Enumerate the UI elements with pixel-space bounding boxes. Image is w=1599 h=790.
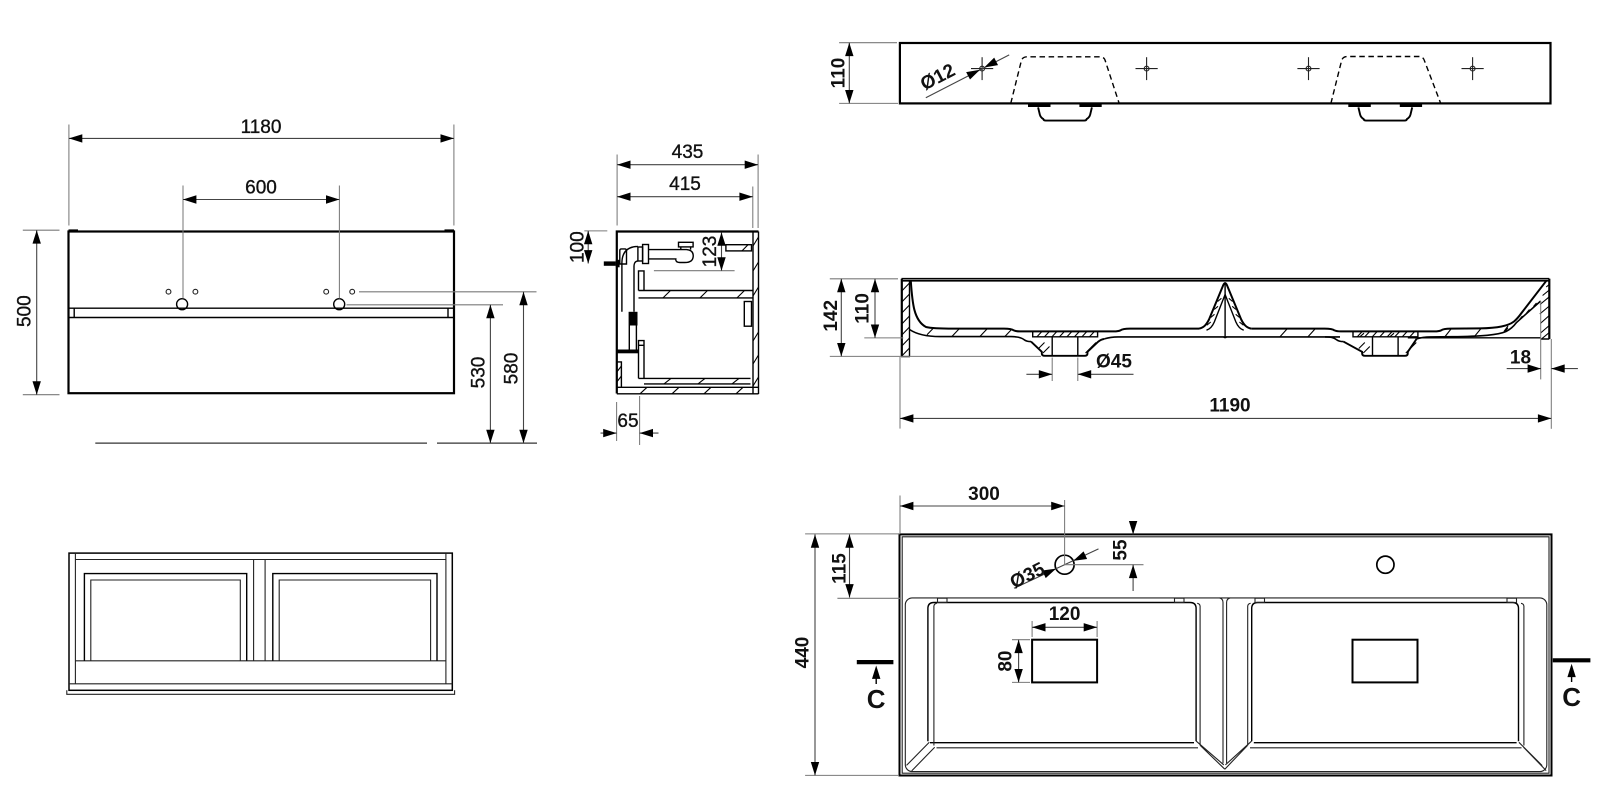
svg-text:110: 110 (829, 58, 850, 89)
svg-text:600: 600 (245, 178, 277, 199)
svg-text:440: 440 (793, 637, 814, 669)
svg-text:142: 142 (821, 300, 842, 332)
svg-text:C: C (1562, 682, 1581, 712)
svg-text:435: 435 (672, 142, 704, 163)
svg-text:580: 580 (502, 353, 523, 385)
svg-text:Ø45: Ø45 (1096, 352, 1132, 373)
svg-text:123: 123 (700, 236, 721, 268)
svg-text:100: 100 (568, 231, 589, 263)
svg-text:55: 55 (1110, 539, 1131, 561)
svg-text:530: 530 (469, 357, 490, 389)
svg-text:65: 65 (617, 411, 638, 432)
svg-text:1190: 1190 (1209, 396, 1250, 417)
svg-text:1180: 1180 (241, 117, 282, 138)
svg-text:18: 18 (1510, 348, 1531, 369)
svg-text:80: 80 (996, 651, 1017, 672)
svg-text:115: 115 (829, 553, 850, 584)
svg-text:110: 110 (853, 293, 874, 324)
svg-text:415: 415 (669, 174, 701, 195)
svg-text:120: 120 (1049, 604, 1081, 625)
svg-text:500: 500 (15, 295, 36, 327)
svg-text:300: 300 (968, 484, 1000, 505)
svg-text:C: C (867, 684, 886, 714)
